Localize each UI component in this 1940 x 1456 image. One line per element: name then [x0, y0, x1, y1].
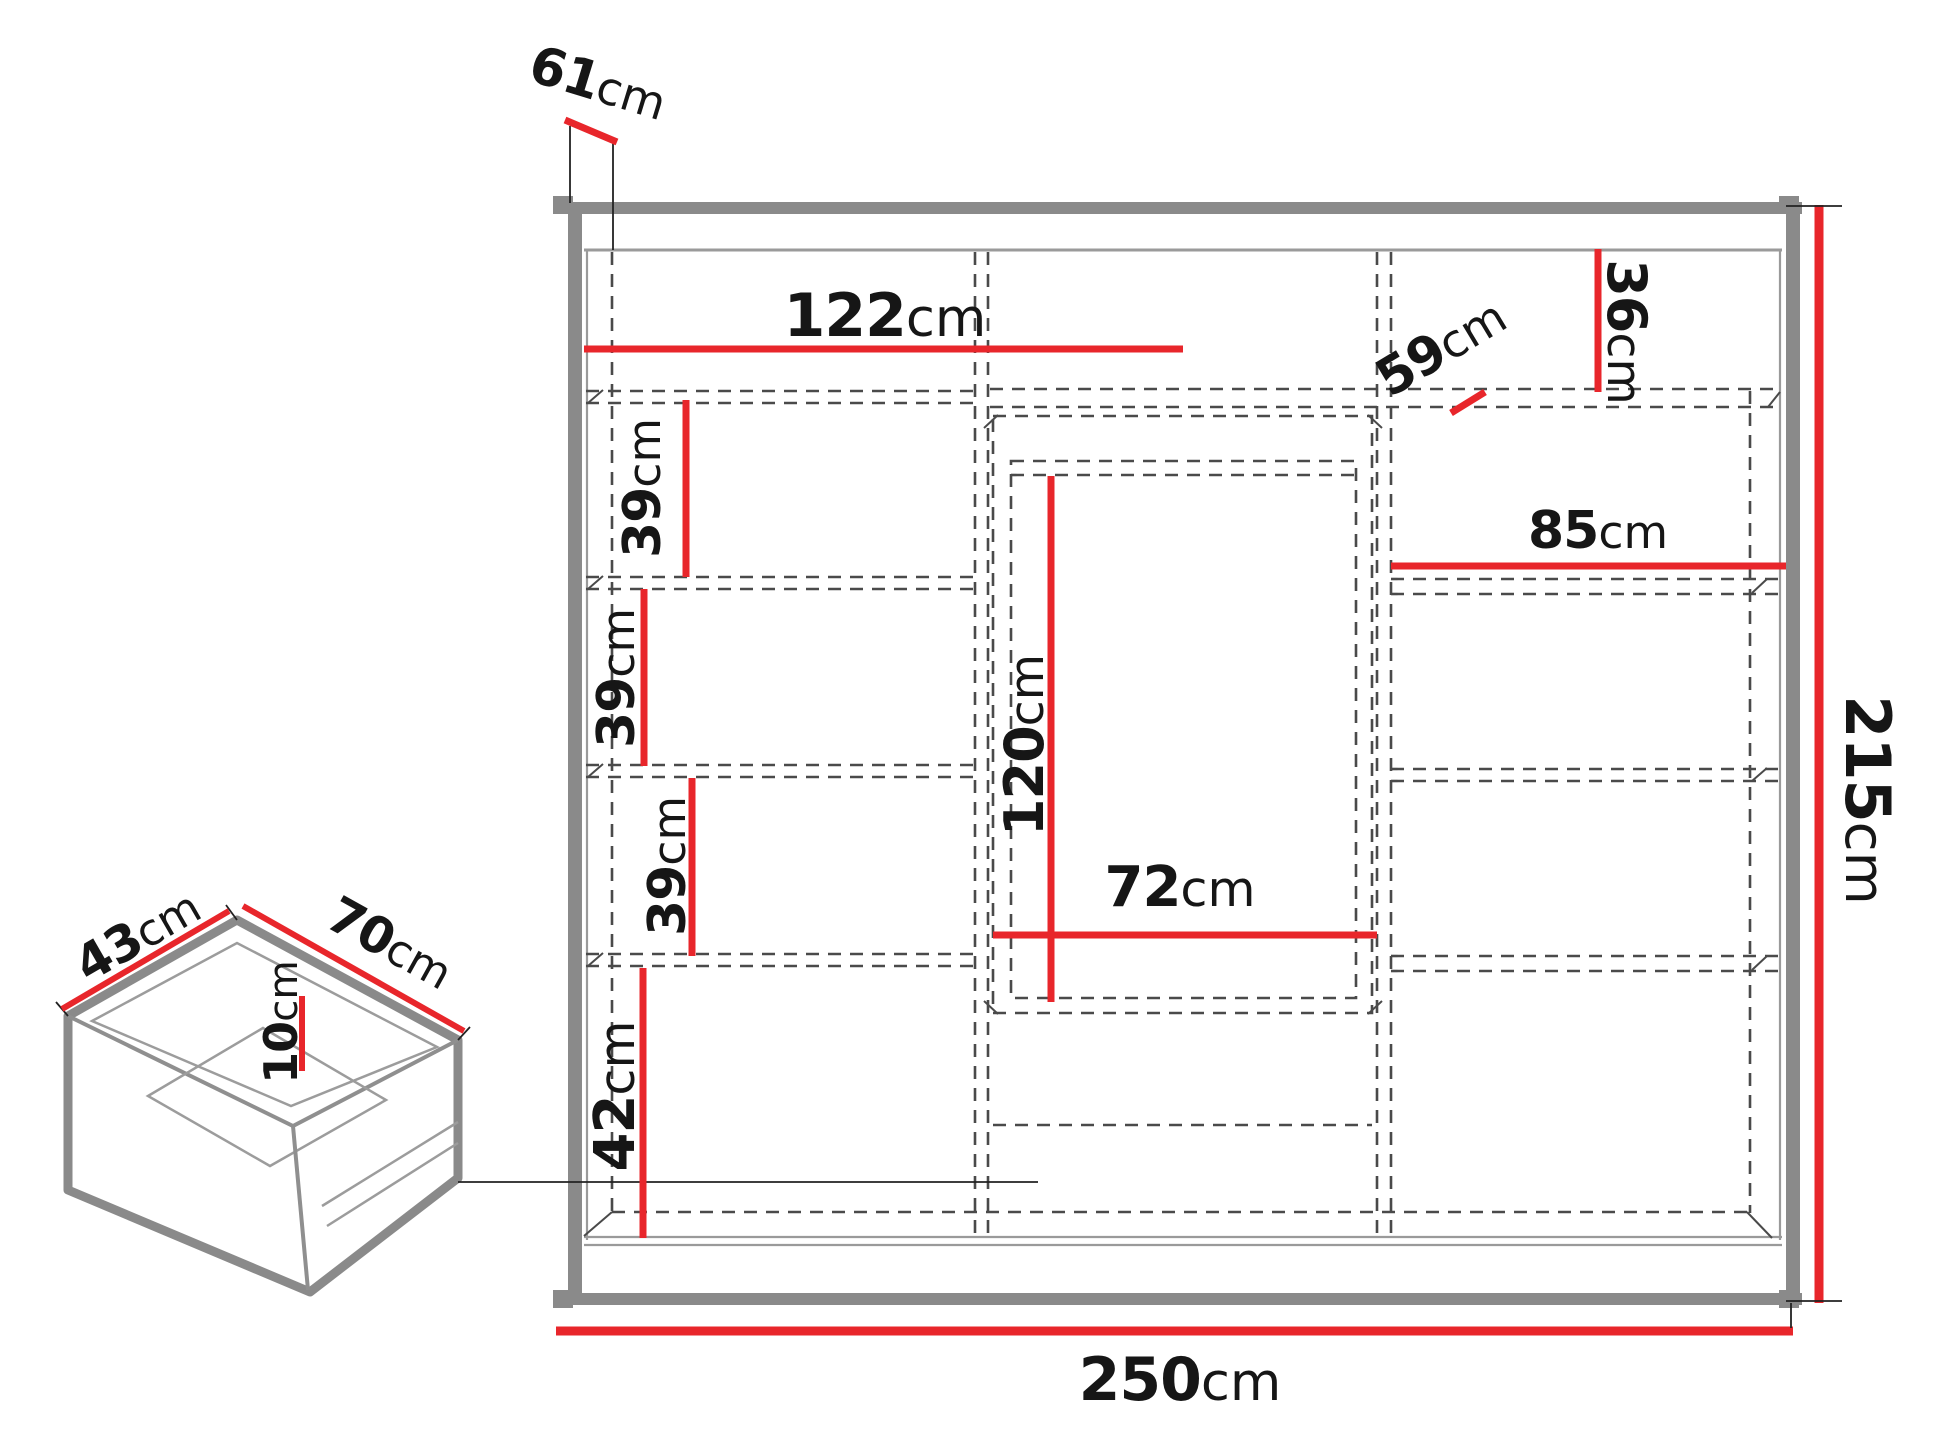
left-side-panel — [568, 202, 582, 1302]
dim-label-total-width: 250cm — [1079, 1345, 1282, 1415]
technical-drawing-canvas: 61cm 122cm 36cm 59cm 39cm 39cm 39cm 42cm… — [0, 0, 1940, 1456]
dim-label-left-door-width: 122cm — [784, 281, 987, 351]
furniture-dimension-diagram: 61cm 122cm 36cm 59cm 39cm 39cm 39cm 42cm… — [0, 0, 1940, 1456]
dim-label-shelf-gap-2: 39cm — [587, 608, 647, 748]
dim-61-tick — [565, 120, 617, 142]
dim-label-bottom-section-height: 42cm — [583, 1020, 648, 1171]
base-panel — [556, 1293, 1802, 1305]
top-panel — [556, 202, 1802, 214]
dim-label-top-depth: 61cm — [522, 35, 674, 133]
dim-label-mirror-height: 120cm — [993, 654, 1056, 836]
dim-59-tick — [1451, 392, 1485, 413]
dim-label-shelf-gap-3: 39cm — [638, 796, 698, 936]
dim-label-shelf-gap-1: 39cm — [613, 418, 673, 558]
dim-label-right-section-width: 85cm — [1528, 501, 1668, 561]
dim-label-top-shelf-height: 36cm — [1595, 259, 1658, 405]
base-left-notch — [553, 1290, 573, 1308]
base-right-notch — [1779, 1290, 1799, 1308]
right-side-panel — [1786, 202, 1800, 1302]
dim-label-total-height: 215cm — [1831, 695, 1904, 905]
dim-label-shelf-depth: 59cm — [1366, 286, 1517, 410]
dim-label-drawer-height: 10cm — [254, 960, 308, 1084]
drawer-isometric-view — [56, 905, 1038, 1292]
dim-label-mirror-width: 72cm — [1104, 855, 1255, 920]
